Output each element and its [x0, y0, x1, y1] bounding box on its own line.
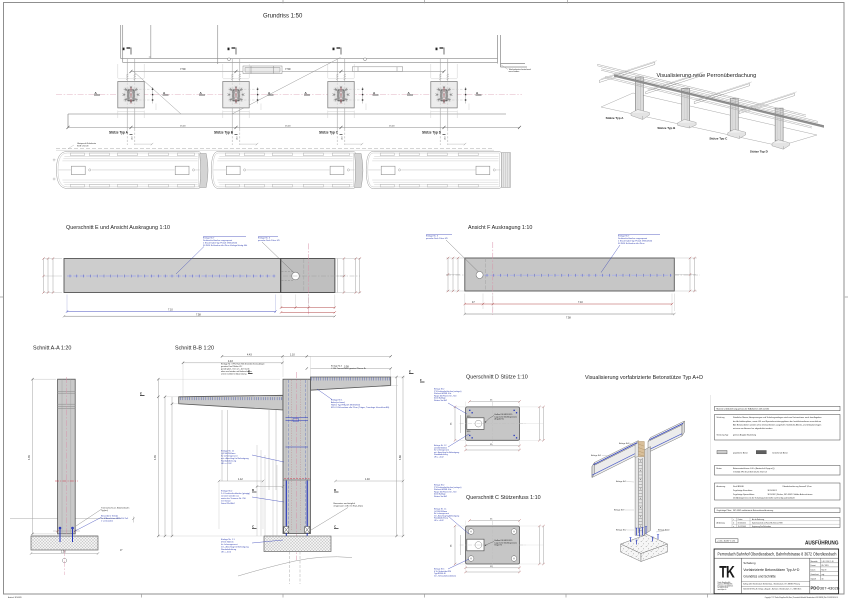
svg-text:Ansicht F Auskragung 1:10: Ansicht F Auskragung 1:10 — [468, 225, 532, 231]
svg-text:7.10: 7.10 — [578, 301, 583, 304]
svg-text:15.00: 15.00 — [285, 125, 291, 127]
svg-text:4.35: 4.35 — [154, 455, 157, 460]
svg-text:Zugehörige Pläne: Zugehörige Pläne — [717, 509, 732, 512]
svg-text:4.35: 4.35 — [28, 455, 31, 460]
svg-text:Stütze Typ C: Stütze Typ C — [319, 130, 339, 134]
svg-text:Stahl B500B: Stahl B500B — [733, 485, 744, 488]
svg-text:7.10: 7.10 — [168, 309, 173, 312]
svg-text:4.88: 4.88 — [399, 455, 402, 460]
svg-text:Überdeckenlierung Generell 3,: Überdeckenlierung Generell 3,5cm — [783, 485, 813, 488]
svg-text:Stütze Typ B: Stütze Typ B — [657, 126, 676, 130]
svg-text:SOK Om LM: SOK Om LM — [77, 145, 89, 147]
svg-text:Querschnitt D Stütze 1:10: Querschnitt D Stütze 1:10 — [466, 375, 528, 381]
svg-text:UK = +0.02: UK = +0.02 — [434, 520, 444, 522]
svg-text:±0.0: ±0.0 — [132, 137, 134, 140]
svg-text:Einlage Nr.1: Einlage Nr.1 — [591, 454, 601, 457]
svg-text:der Architektenpläne, sowie LM: der Architektenpläne, sowie LM- und Spez… — [733, 420, 821, 423]
svg-text:Zugehörige Eisenlisten:: Zugehörige Eisenlisten: — [733, 489, 753, 492]
svg-text:Armierung: Armierung — [717, 485, 726, 488]
svg-text:mit - Schraub(mussklötze): mit - Schraub(mussklötze) — [434, 574, 456, 577]
svg-text:Stütze Typ A: Stütze Typ A — [109, 130, 129, 134]
svg-text:Einlage Nr.8: Einlage Nr.8 — [619, 442, 629, 445]
svg-text:Alle Betonarbeiten werden ohne: Alle Betonarbeiten werden ohne Dreikantl… — [733, 423, 821, 426]
svg-text:+- 0.00 = 604.85° m ü.M.: +- 0.00 = 604.85° m ü.M. — [717, 541, 736, 543]
svg-text:G 30/40 XF4 XC4 XD3 D12/1: G 30/40 XF4 XC4 XD3 D12/1 XG2 C3 — [733, 472, 768, 474]
svg-text:E: E — [140, 392, 142, 396]
svg-text:unten revidiert in Ausrüstung: unten revidiert in Ausrüstung — [221, 373, 246, 376]
svg-text:Stütze Typ C: Stütze Typ C — [709, 137, 728, 141]
svg-text:gemäss Angabe Bauleitung: gemäss Angabe Bauleitung — [733, 434, 756, 437]
svg-text:Einlage Nr.5: Einlage Nr.5 — [616, 480, 626, 483]
svg-text:Schnitt A-A 1:20: Schnitt A-A 1:20 — [33, 346, 71, 352]
svg-text:Schnitt B-B 1:20: Schnitt B-B 1:20 — [175, 346, 214, 352]
svg-text:7.58: 7.58 — [196, 313, 201, 316]
svg-text:Tel. 031 352 31 61: Tel. 031 352 31 61 — [718, 587, 729, 589]
svg-text:M20: M20 — [467, 416, 471, 418]
svg-text:Material und Ausführung gemäss: Material und Ausführung gemäss der SIA-N… — [717, 408, 770, 411]
svg-text:Visualisierung neue Perronüber: Visualisierung neue Perronüberdachung — [657, 73, 757, 79]
svg-text:4°: 4° — [120, 548, 122, 552]
svg-text:UK = +2.62: UK = +2.62 — [221, 463, 232, 465]
svg-text:15.12.2009: 15.12.2009 — [738, 526, 746, 528]
svg-text:verschieben: verschieben — [509, 71, 520, 73]
svg-text:Reiters Var.Bh2: Reiters Var.Bh2 — [434, 495, 447, 498]
svg-text:müssen von Aussen her abgedich: müssen von Aussen her abgedichtet werden — [733, 427, 772, 430]
svg-text:Mai 09: Mai 09 — [822, 569, 827, 571]
svg-text:TK: TK — [719, 564, 735, 582]
svg-text:15.00: 15.00 — [180, 125, 186, 127]
svg-text:Detail 25x38x2: Detail 25x38x2 — [221, 502, 236, 505]
svg-text:±0.0: ±0.0 — [342, 137, 344, 140]
svg-text:persube Dreh 10cm VD: persube Dreh 10cm VD — [258, 239, 280, 242]
svg-text:Schalung Typ:: Schalung Typ: — [717, 435, 729, 437]
svg-text:Querschnitt E und Ansicht Ausk: Querschnitt E und Ansicht Auskragung 1:1… — [66, 225, 170, 231]
svg-text:1.12: 1.12 — [238, 478, 243, 481]
svg-text:89 / 128.5: 89 / 128.5 — [822, 565, 829, 567]
svg-text:367-4302B: 367-4302B — [820, 585, 840, 590]
svg-text:Änderung: Änderung — [717, 522, 725, 525]
svg-text:Kögel 75: Kögel 75 — [495, 545, 502, 547]
svg-text:Querschnitt C Stützenfuss 1:10: Querschnitt C Stützenfuss 1:10 — [466, 495, 541, 501]
svg-text:E: E — [409, 370, 411, 374]
svg-text:±0.0: ±0.0 — [237, 137, 239, 140]
svg-text:a: a — [733, 526, 734, 528]
svg-text:367-4302 | Reihes, 367-4302.2: 367-4302 | Reihes, 367-4302.2 Halfen Ank… — [768, 493, 813, 496]
svg-text:Sämtliche Masse, Aussparungen: Sämtliche Masse, Aussparungen und Schalu… — [733, 416, 822, 419]
svg-text:367-4302 vorfabrizierte Betons: 367-4302 vorfabrizierte Betonstützen Arm… — [733, 509, 773, 512]
svg-text:UK = +0.02: UK = +0.02 — [434, 457, 444, 459]
svg-text:Stütze Typ D: Stütze Typ D — [750, 149, 769, 153]
svg-text:C 18k Transschiene gemäss Plan: C 18k Transschiene gemäss Planen 4b — [331, 368, 367, 370]
svg-text:Beton:: Beton: — [717, 467, 723, 470]
svg-text:09.03.2010: 09.03.2010 — [738, 523, 746, 525]
svg-text:Stütze Typ B: Stütze Typ B — [214, 130, 234, 134]
svg-text:Schalung: Schalung — [717, 417, 725, 419]
svg-text:1.40: 1.40 — [365, 478, 370, 481]
svg-text:Die Absteigerstess ist die Sch: Die Absteigerstess ist die Schalungszeah… — [733, 497, 795, 500]
svg-text:90 W10 Schlaufen alle 45cm: 90 W10 Schlaufen alle 45cm — [618, 243, 645, 245]
svg-text:1:50 / 1:20 / 1:10: 1:50 / 1:20 / 1:10 — [822, 561, 834, 563]
svg-text:7.50: 7.50 — [180, 67, 186, 71]
svg-text:Stütze Typ A: Stütze Typ A — [606, 116, 625, 120]
svg-text:Reiters Var.Bh2: Reiters Var.Bh2 — [434, 399, 447, 402]
svg-text:Stütze Typ D: Stütze Typ D — [422, 130, 442, 134]
svg-text:Visualisierung vorfabrizierte: Visualisierung vorfabrizierte Betonstütz… — [585, 375, 703, 381]
svg-text:15.00: 15.00 — [389, 125, 395, 127]
svg-text:M 16 S Schrauben alle 25cm (Tr: M 16 S Schrauben alle 25cm (Träger, Tren… — [331, 406, 389, 409]
svg-text:Typ(es): Typ(es) — [101, 510, 108, 512]
svg-text:Zugehörige Spezzallisten:: Zugehörige Spezzallisten: — [733, 493, 755, 496]
svg-text:F: F — [420, 378, 422, 382]
svg-text:Grundriss 1:50: Grundriss 1:50 — [263, 14, 303, 20]
svg-text:1.10: 1.10 — [290, 353, 295, 356]
svg-text:7.58: 7.58 — [566, 317, 571, 320]
svg-text:Betonsortenklasse G 4/+ (A: Betonsortenklasse G 4/+ (Anstecknl Zepp … — [733, 467, 775, 470]
svg-text:Ergänzung Pos/Schrauben: Ergänzung Pos/Schrauben — [752, 526, 771, 528]
svg-text:M20: M20 — [467, 431, 471, 433]
svg-text:1.50: 1.50 — [61, 551, 66, 554]
svg-text:bestehende Beton: bestehende Beton — [773, 451, 788, 454]
svg-text:Perrondach Bahnhof Oberdiessba: Perrondach Bahnhof Oberdiessbach, Bahnho… — [718, 552, 838, 557]
svg-text:Schalung: Schalung — [743, 561, 755, 565]
svg-text:±0.0: ±0.0 — [445, 137, 447, 140]
svg-text:b: b — [733, 523, 734, 525]
svg-text:4.43: 4.43 — [247, 353, 252, 356]
svg-text:Vorfabrizierte Betonstützen Ty: Vorfabrizierte Betonstützen Typ A+D — [743, 568, 799, 572]
svg-text:7.50: 7.50 — [285, 67, 291, 71]
svg-text:Grundriss und Schnitte: Grundriss und Schnitte — [743, 574, 776, 578]
svg-text:4.43: 4.43 — [228, 360, 233, 363]
svg-text:E: E — [248, 370, 250, 374]
svg-text:Einlage Nr.2: Einlage Nr.2 — [616, 529, 626, 532]
svg-text:Einlage Nr.9: Einlage Nr.9 — [614, 509, 624, 512]
svg-text:AUSFÜHRUNG: AUSFÜHRUNG — [805, 540, 839, 547]
svg-text:n verstanden: n verstanden — [101, 520, 114, 523]
svg-text:Angabe NL: Angabe NL — [495, 418, 504, 421]
svg-text:projektierte Beton: projektierte Beton — [733, 451, 748, 454]
svg-text:persube Dreh 10cm VD: persube Dreh 10cm VD — [426, 237, 448, 240]
svg-text:367-4302.1: 367-4302.1 — [768, 490, 778, 492]
svg-text:UK = -0.02: UK = -0.02 — [221, 552, 232, 554]
svg-text:90 W10 Schlaufen alle 45cm Vor: 90 W10 Schlaufen alle 45cm Vorlage Härti… — [203, 244, 248, 247]
svg-text:eingenauen U.B. mit Stan-Ds(s): eingenauen U.B. mit Stan-Ds(s) — [334, 505, 364, 508]
